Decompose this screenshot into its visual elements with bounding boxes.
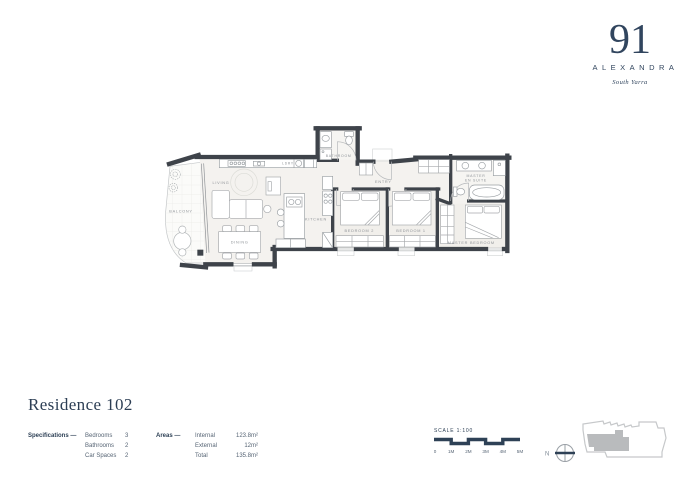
area-label: External (195, 441, 229, 451)
area-row: Total 135.8m² (195, 451, 258, 461)
spec-label: Car Spaces (85, 451, 125, 461)
entry-recess (373, 149, 392, 161)
areas-heading: Areas — (156, 431, 195, 461)
area-label: Total (195, 451, 229, 461)
logo-name: ALEXANDRA (588, 63, 672, 72)
cooktop (323, 191, 333, 216)
scale-ticks: 0 1M 2M 3M 4M 5M (434, 449, 523, 454)
area-label: Internal (195, 431, 229, 441)
key-plan (577, 414, 671, 472)
scale-label: SCALE 1:100 (434, 428, 473, 434)
bedroom1-furniture (389, 192, 435, 247)
scale-tick: 1M (448, 449, 455, 454)
room-label-kitchen: KITCHEN (305, 217, 327, 221)
logo-suburb: South Yarra (588, 79, 672, 86)
brand-logo: 91 ALEXANDRA South Yarra (588, 20, 672, 86)
scale-segments (434, 440, 520, 444)
page-title: Residence 102 (28, 395, 133, 415)
scale-tick: 3M (482, 449, 489, 454)
room-label-ensuite-1: MASTER (467, 174, 486, 178)
bedroom2-furniture (336, 192, 383, 247)
spec-row: Bathrooms 2 (85, 441, 135, 451)
room-label-balcony: BALCONY (169, 209, 192, 213)
room-label-living: LIVING (213, 181, 230, 185)
column (197, 250, 203, 256)
floor-plan: BALCONY LIVING DINING KITCHEN LDRY BATHR… (150, 105, 530, 305)
spec-label: Bedrooms (85, 431, 125, 441)
scale-tick: 5M (517, 449, 524, 454)
area-row: Internal 123.8m² (195, 431, 258, 441)
scale-bar: SCALE 1:100 0 1M 2M 3M 4M 5M (434, 426, 526, 460)
logo-number: 91 (588, 20, 672, 60)
scale-tick: 2M (465, 449, 472, 454)
spec-value: 3 (125, 431, 135, 441)
room-label-bedroom2: BEDROOM 2 (345, 229, 375, 233)
area-value: 135.8m² (229, 451, 258, 461)
area-value: 123.8m² (229, 431, 258, 441)
area-row: External 12m² (195, 441, 258, 451)
side-table (264, 205, 271, 212)
spec-value: 2 (125, 441, 135, 451)
room-label-entry: ENTRY (375, 180, 392, 184)
spec-label: Bathrooms (85, 441, 125, 451)
room-label-ldry: LDRY (282, 162, 294, 166)
spec-row: Car Spaces 2 (85, 451, 135, 461)
areas-group: Areas — Internal 123.8m² External 12m² T… (156, 431, 258, 461)
room-label-ensuite-2: EN SUITE (465, 179, 487, 183)
room-label-master: MASTER BEDROOM (448, 241, 495, 245)
specifications-heading: Specifications — (28, 431, 85, 461)
fridge (323, 232, 333, 247)
room-label-dining: DINING (231, 240, 249, 244)
north-label: N (545, 452, 549, 458)
room-label-bathroom: BATHROOM (326, 154, 352, 158)
room-label-bedroom1: BEDROOM 1 (396, 229, 426, 233)
scale-tick: 4M (500, 449, 507, 454)
spec-row: Bedrooms 3 (85, 431, 135, 441)
area-value: 12m² (229, 441, 258, 451)
scale-tick: 0 (434, 449, 437, 454)
spec-value: 2 (125, 451, 135, 461)
bathtub (469, 185, 504, 200)
master-furniture (441, 205, 502, 244)
tv-unit (266, 177, 281, 195)
specifications-group: Specifications — Bedrooms 3 Bathrooms 2 … (28, 431, 135, 461)
